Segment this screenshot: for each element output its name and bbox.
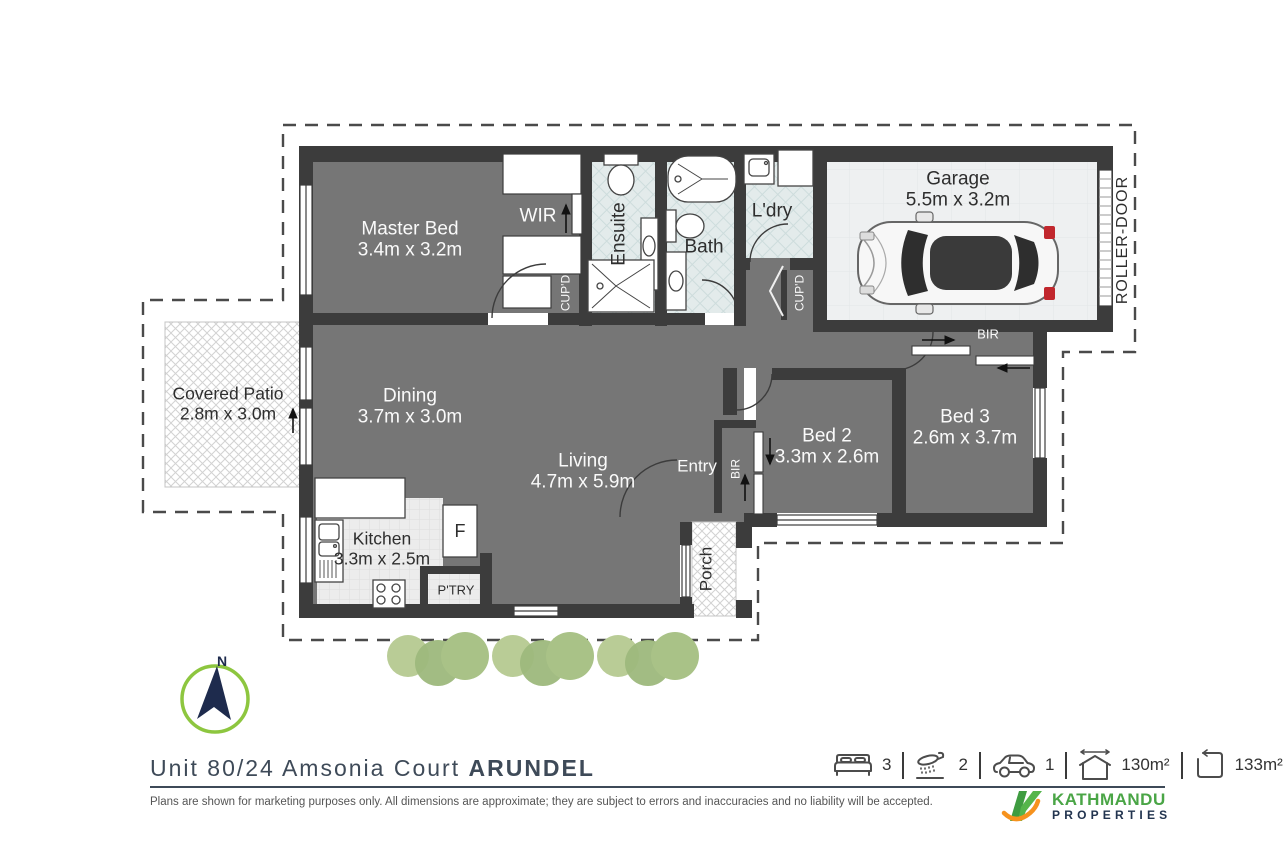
brand-name: KATHMANDU [1052,791,1171,809]
bed-icon [833,752,873,778]
kathmandu-k-icon [1000,787,1044,825]
address-street: Unit 80/24 Amsonia Court [150,755,460,781]
toilet-icon [604,154,638,165]
shower-icon [915,750,949,780]
car-headlight [860,286,874,294]
laundry-fixtures [744,150,813,186]
north-compass [182,666,248,732]
roller-door [1099,170,1112,306]
address-line: Unit 80/24 Amsonia Court ARUNDEL [150,755,595,782]
stat-separator [902,752,904,779]
car-mirror [916,304,933,314]
car-mirror [916,212,933,222]
patio-floor [165,322,305,487]
porch-floor [692,522,736,616]
bed2-floor [756,368,892,513]
disclaimer-text: Plans are shown for marketing purposes o… [150,796,1000,808]
brand-logo: KATHMANDU PROPERTIES [1000,787,1171,825]
floorplan-drawing [0,0,1284,856]
cooktop-icon [373,580,405,608]
stat-separator [1181,752,1183,779]
stat-car-spaces: 1 [992,752,1054,779]
car-top-view [858,212,1058,314]
laundry-bench [778,150,813,186]
fridge-space [443,505,477,557]
toilet-icon [666,210,676,242]
land-area-icon [1194,749,1226,781]
stat-bathrooms: 2 [915,750,967,780]
pantry-floor [428,574,480,604]
stat-land-area: 133m² [1194,749,1283,781]
stat-house-area: 130m² [1078,749,1169,781]
north-arrow-icon [197,666,231,720]
stat-separator [979,752,981,779]
property-stats: 3 2 1 130m² [833,748,1283,782]
car-icon [992,752,1036,779]
car-taillight [1044,287,1055,300]
floorplan-page: Master Bed 3.4m x 3.2m WIR CUP'D Ensuite… [0,0,1284,856]
house-area-icon [1078,749,1112,781]
kitchen-bench [315,478,405,518]
brand-subtitle: PROPERTIES [1052,809,1171,822]
bir2-floor [722,420,756,513]
stat-separator [1065,752,1067,779]
address-suburb: ARUNDEL [468,755,594,781]
stat-bedrooms: 3 [833,752,891,778]
bed3-floor [906,368,1033,513]
car-taillight [1044,226,1055,239]
car-headlight [860,232,874,240]
brand-text: KATHMANDU PROPERTIES [1052,791,1171,821]
